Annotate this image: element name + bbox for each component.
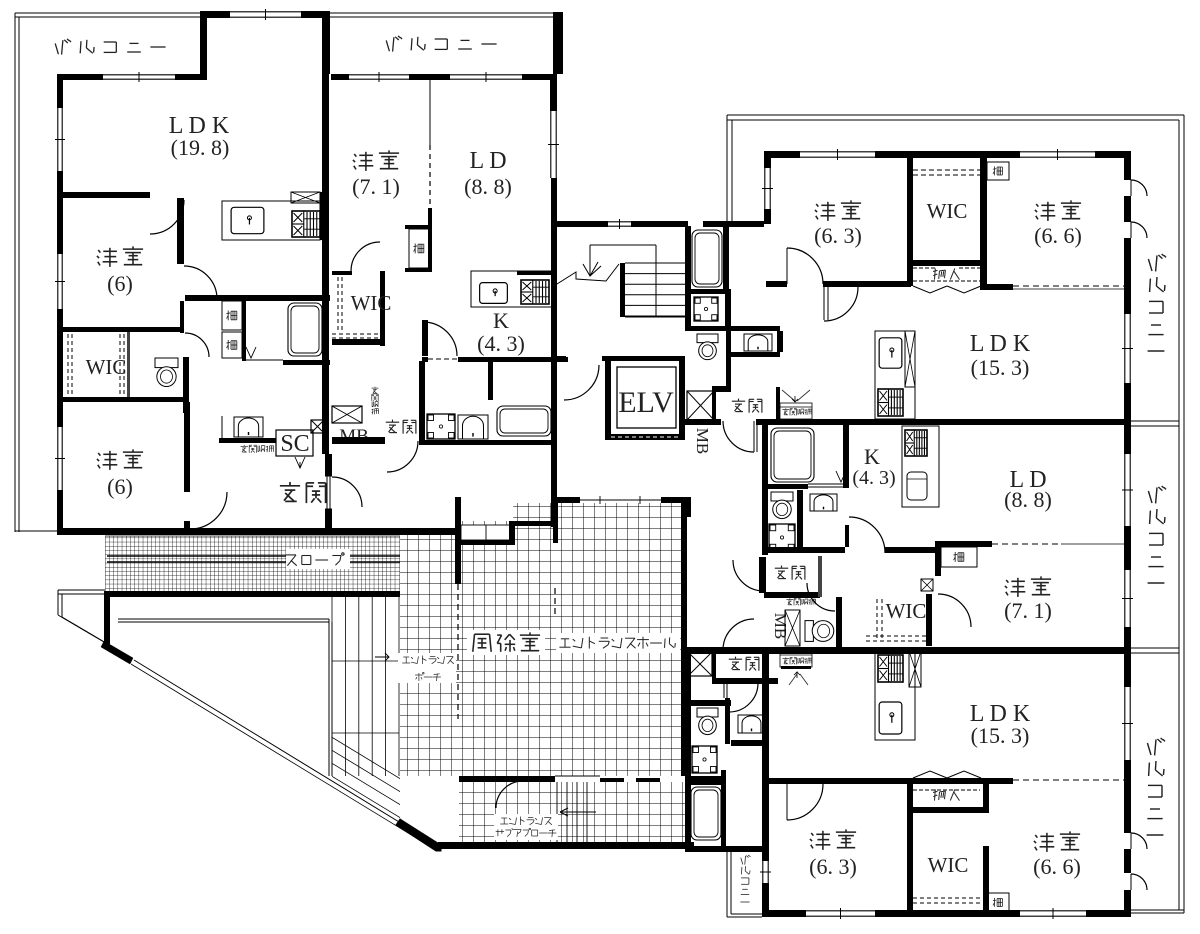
svg-text:(7. 1): (7. 1) [1004,598,1052,623]
svg-text:MB: MB [693,428,712,454]
svg-text:MB: MB [771,613,790,639]
svg-text:(4. 3): (4. 3) [477,331,525,356]
svg-text:(6. 6): (6. 6) [1033,854,1081,879]
svg-text:(6. 3): (6. 3) [809,854,857,879]
svg-text:(6): (6) [107,474,133,499]
svg-text:(6): (6) [107,271,133,296]
svg-text:(7. 1): (7. 1) [352,174,400,199]
svg-text:K: K [864,444,880,469]
svg-text:(15. 3): (15. 3) [971,723,1030,748]
svg-text:(8. 8): (8. 8) [464,174,512,199]
svg-text:WIC: WIC [351,291,392,315]
svg-text:(15. 3): (15. 3) [971,355,1030,380]
svg-text:(8. 8): (8. 8) [1004,487,1052,512]
svg-text:L D K: L D K [970,331,1031,357]
svg-text:(4. 3): (4. 3) [852,467,895,489]
svg-text:WIC: WIC [927,199,968,223]
svg-text:(6. 6): (6. 6) [1034,223,1082,248]
svg-text:K: K [493,308,509,333]
svg-text:WIC: WIC [86,355,127,379]
svg-text:WIC: WIC [886,599,927,623]
svg-text:SC: SC [280,431,309,457]
svg-text:(6. 3): (6. 3) [814,223,862,248]
svg-text:(19. 8): (19. 8) [171,135,230,160]
svg-text:ELV: ELV [618,386,674,419]
svg-text:L D: L D [469,148,506,174]
svg-text:WIC: WIC [928,853,969,877]
